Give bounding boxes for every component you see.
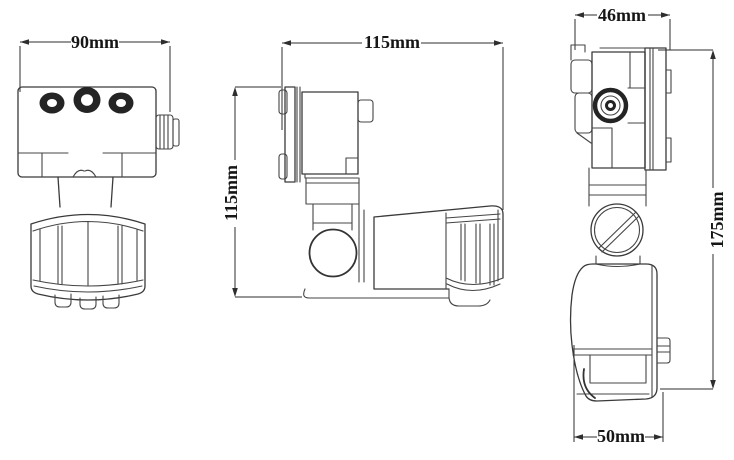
front-dimension-width-label: 90mm <box>71 32 119 52</box>
profile-dimension-top-width: 46mm <box>575 5 670 50</box>
profile-lens-icon <box>595 90 626 121</box>
front-lens-feet <box>55 294 119 309</box>
profile-dimension-height-label: 175mm <box>707 192 727 249</box>
technical-drawing: 90mm <box>0 0 734 460</box>
front-lens-ribs <box>33 222 143 293</box>
side-dimension-depth-label: 115mm <box>364 32 420 52</box>
side-dimension-height-label: 115mm <box>221 165 241 221</box>
profile-head-side-clip <box>657 338 670 363</box>
front-housing-details <box>18 153 156 177</box>
profile-top-body <box>571 45 671 170</box>
side-dimension-height: 115mm <box>221 87 302 297</box>
side-bracket-arm <box>306 178 364 282</box>
side-sensor-head <box>304 206 503 306</box>
drawing-canvas: 90mm <box>0 0 734 460</box>
profile-view: 46mm 175mm 50mm <box>571 5 728 446</box>
profile-dimension-top-width-label: 46mm <box>598 5 646 25</box>
front-side-connector <box>156 115 179 149</box>
front-view: 90mm <box>18 32 179 309</box>
front-lens-cylinder <box>31 215 145 310</box>
side-dimension-height-line <box>235 87 302 297</box>
front-sensor-holes <box>40 87 134 114</box>
profile-arm <box>589 168 646 267</box>
side-ball-joint <box>310 230 357 277</box>
profile-pivot-screw <box>591 204 643 256</box>
profile-sensor-head <box>571 264 671 401</box>
profile-dimension-bottom-width-label: 50mm <box>597 426 645 446</box>
side-mounting-box <box>279 87 373 182</box>
side-view: 115mm 115mm <box>221 32 503 306</box>
front-neck <box>58 177 113 207</box>
profile-dimension-bottom-width: 50mm <box>574 345 663 446</box>
side-dimension-depth-line <box>282 43 503 210</box>
